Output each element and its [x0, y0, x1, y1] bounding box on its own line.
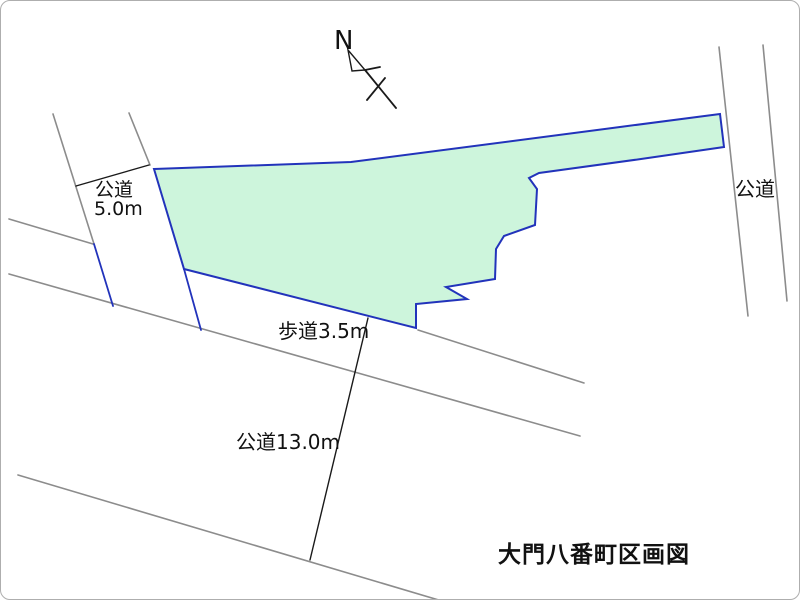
- road-edge-line: [9, 219, 93, 244]
- map-title: 大門八番町区画図: [498, 542, 690, 568]
- right-road-label: 公道: [735, 177, 775, 201]
- road-edge-line: [53, 114, 94, 244]
- road-edge-line: [18, 475, 442, 600]
- north-label: N: [334, 26, 353, 56]
- bottom-road-label: 公道13.0m: [236, 430, 340, 454]
- plot-map-svg: N 公道 5.0m 歩道3.5m 公道13.0m 公道 大門八番町区画図: [1, 1, 800, 600]
- north-compass: N: [334, 26, 396, 108]
- compass-cross-line: [367, 78, 385, 100]
- road-edge-blue-segment: [94, 244, 113, 306]
- land-parcel-shape: [154, 114, 724, 328]
- road-edge-blue-segment: [184, 269, 201, 330]
- compass-needle-line: [365, 70, 396, 108]
- road-edge-line: [763, 45, 787, 301]
- road-edge-line: [129, 113, 150, 165]
- left-road-label-width: 5.0m: [94, 198, 143, 220]
- compass-tick-line: [365, 67, 380, 70]
- plot-map-canvas: N 公道 5.0m 歩道3.5m 公道13.0m 公道 大門八番町区画図: [0, 0, 800, 600]
- sidewalk-label: 歩道3.5m: [278, 319, 369, 343]
- road-edge-line: [418, 330, 584, 383]
